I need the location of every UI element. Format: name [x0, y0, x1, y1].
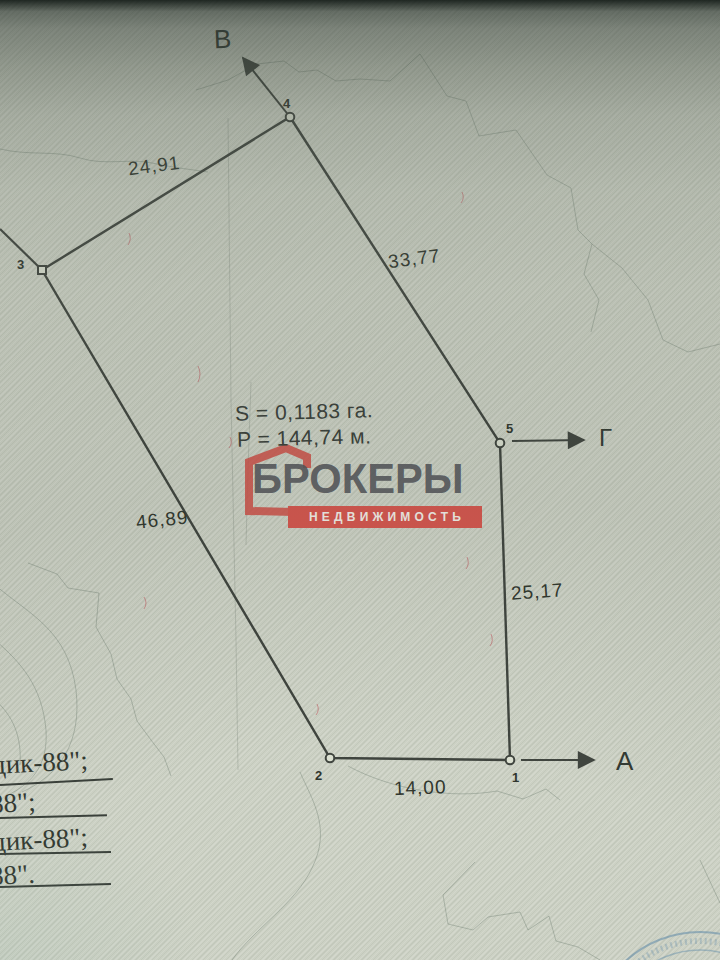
east-direction-label-upper: Г — [599, 424, 612, 452]
vertex-marker-1 — [506, 756, 515, 765]
east-arrow-upper — [512, 440, 584, 441]
margin-note-1: дик-88"; — [0, 745, 89, 781]
area-value: S = 0,1183 га. — [235, 398, 374, 426]
round-stamp — [590, 932, 720, 960]
watermark-brand-text: БРОКЕРЫ — [252, 454, 464, 503]
vertex-marker-3 — [38, 266, 46, 274]
side-label-5-1: 25,17 — [510, 579, 564, 605]
watermark-logo: БРОКЕРЫ НЕДВИЖИМОСТЬ — [232, 444, 492, 534]
scanned-survey-plan: В Г А 4 3 5 2 1 24,91 33,77 46,89 25,17 … — [0, 0, 720, 960]
vertex-label-5: 5 — [506, 421, 513, 436]
margin-note-2: 88"; — [0, 787, 36, 820]
perimeter-value: P = 144,74 м. — [237, 424, 372, 452]
north-direction-label: В — [213, 24, 231, 56]
east-direction-label-lower: А — [616, 746, 633, 777]
vertex-marker-4 — [286, 113, 295, 122]
watermark-banner: НЕДВИЖИМОСТЬ — [288, 506, 482, 528]
vertex-marker-5 — [496, 439, 505, 448]
watermark-tagline-text: НЕДВИЖИМОСТЬ — [305, 510, 465, 524]
vertex-label-2: 2 — [315, 768, 322, 783]
side-label-2-1: 14,00 — [394, 776, 447, 800]
vertex-label-3: 3 — [17, 257, 24, 272]
vertex-label-1: 1 — [512, 770, 519, 785]
vertex-label-4: 4 — [283, 96, 290, 111]
vertex-marker-2 — [326, 754, 335, 763]
